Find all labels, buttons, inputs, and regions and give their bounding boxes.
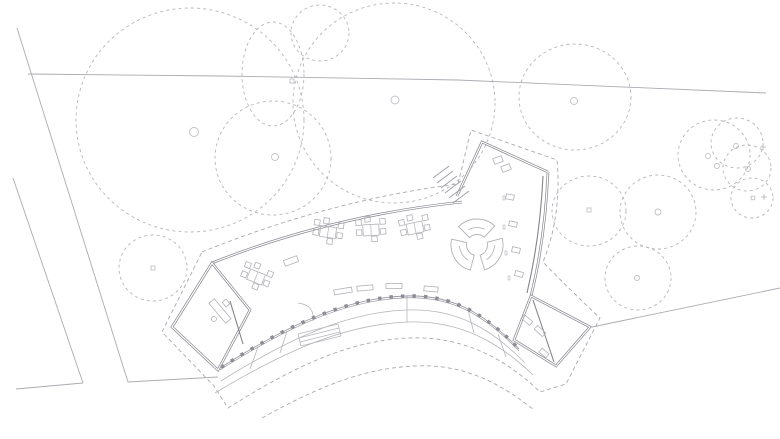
bench (534, 325, 545, 336)
mullion-tick (467, 307, 472, 312)
tree-trunk (734, 144, 739, 149)
east-wall-core (531, 172, 548, 296)
trees-layer (76, 3, 773, 310)
terrace-stair-line (301, 336, 341, 346)
tree-trunk (635, 276, 640, 281)
bench (386, 284, 402, 289)
survey-plus-marker (761, 194, 767, 200)
mullion-tick (280, 330, 285, 335)
small-fixture-mark (503, 225, 505, 229)
chair (380, 218, 386, 224)
pinwheel-blade-detail (487, 245, 495, 259)
site-boundary-line (13, 178, 83, 383)
fixture-dot (212, 317, 217, 322)
small-tree-canopy (119, 235, 187, 301)
chair (313, 229, 319, 235)
site-boundary-line (16, 383, 83, 389)
tree-trunk (706, 154, 711, 159)
mullion-tick (260, 341, 265, 346)
chair (327, 238, 333, 244)
table-chair-cluster (398, 211, 432, 242)
chair (241, 271, 248, 278)
chair (254, 262, 261, 269)
table-divider (254, 272, 258, 282)
tree-trunk (655, 209, 661, 215)
pinwheel-blade-detail (469, 228, 485, 230)
small-tree-canopy (678, 120, 750, 190)
tree-trunk (571, 98, 578, 105)
mullion-tick (412, 294, 415, 297)
reception-desk (209, 299, 231, 323)
south-facade-glazing (220, 296, 519, 368)
terrace-stair-line (298, 324, 338, 334)
table-divider (371, 225, 372, 236)
chair (267, 270, 274, 277)
mullion-tick (290, 325, 295, 330)
medium-tree-canopy (519, 44, 631, 150)
small-tree-canopy (711, 118, 763, 168)
small-tree-canopy (731, 178, 773, 218)
tree-trunk (272, 154, 279, 161)
chair (323, 218, 329, 224)
chair (424, 224, 431, 231)
site-plan-canvas (0, 0, 780, 439)
tree-trunk (715, 164, 720, 169)
pinwheel-blade (459, 219, 495, 238)
bench (424, 286, 438, 292)
chair (400, 229, 407, 236)
terrace-arc (215, 322, 533, 393)
tree-trunk (190, 128, 199, 137)
pinwheel-seat (451, 219, 503, 270)
south-facade-glazing-inner (220, 298, 519, 370)
small-fixture-mark (503, 196, 505, 200)
small-tree-canopy (242, 22, 304, 126)
table-divider (327, 227, 329, 238)
shelf (509, 221, 518, 228)
bench (334, 287, 353, 295)
tree-trunk (151, 266, 155, 270)
medium-tree-canopy (552, 176, 626, 246)
bench (283, 256, 298, 266)
chair (380, 228, 386, 234)
medium-tree-canopy (605, 246, 671, 310)
roof-overhang-outline (162, 130, 600, 408)
pinwheel-blade (480, 238, 503, 270)
chair (422, 214, 429, 221)
bench (357, 285, 373, 291)
shelf (506, 194, 515, 200)
mullion-tick (230, 358, 235, 363)
building-layer (162, 130, 600, 418)
chair (244, 262, 251, 269)
terrace-stair-line (298, 334, 301, 346)
northeast-wing-wall (457, 142, 548, 196)
chair (356, 220, 362, 226)
tree-trunk (290, 79, 294, 83)
site-plan-svg (0, 0, 780, 439)
mullion-tick (401, 294, 405, 298)
south-facade-mullions (220, 294, 517, 369)
mullion-tick (366, 298, 370, 302)
terrace-arc (221, 310, 525, 381)
bench (493, 156, 504, 165)
path-edge-line (128, 377, 218, 382)
small-tree-canopy (291, 5, 349, 61)
shelf (512, 247, 521, 254)
medium-tree-canopy (620, 175, 696, 249)
bench (521, 315, 533, 326)
path-edge-line (592, 288, 780, 327)
tree-trunk (751, 196, 755, 200)
terrace-edge-dashed (262, 366, 534, 418)
medium-tree-canopy (215, 101, 331, 215)
chair (263, 280, 270, 287)
table-divider (414, 223, 416, 234)
table-chair-cluster (312, 216, 345, 245)
chair (314, 219, 320, 225)
shelf (514, 271, 523, 278)
mullion-tick (378, 296, 382, 300)
mullion-tick (250, 346, 255, 351)
chair (417, 233, 424, 240)
east-wall (531, 172, 548, 296)
mullion-tick (270, 335, 275, 340)
chair (336, 233, 342, 239)
chair (398, 219, 405, 226)
site-boundary-line (17, 28, 128, 382)
chair (372, 236, 378, 242)
large-tree-canopy (293, 3, 495, 203)
mullion-tick (389, 295, 393, 299)
mullion-tick (435, 296, 439, 300)
mullion-tick (424, 295, 428, 299)
chair (407, 215, 414, 222)
mullion-tick (240, 352, 245, 357)
site-lines-layer (13, 28, 780, 389)
tree-trunk (391, 96, 399, 104)
tree-trunk (587, 208, 591, 212)
small-fixture-mark (508, 276, 510, 280)
table-chair-cluster (238, 259, 275, 294)
desk-chair (222, 299, 230, 307)
bench (501, 164, 512, 173)
small-fixture-mark (505, 251, 507, 255)
large-tree-canopy (76, 8, 304, 232)
chair (356, 230, 362, 236)
table-chair-cluster (356, 215, 387, 242)
contour-line (28, 74, 766, 93)
